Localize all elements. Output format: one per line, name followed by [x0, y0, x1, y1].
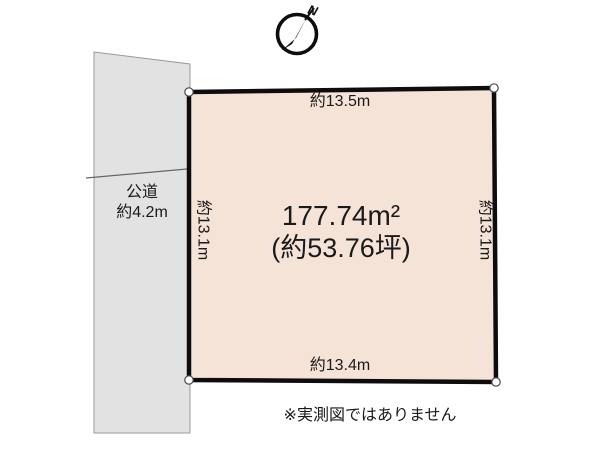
plot-left-length-label: 約13.1m [193, 200, 212, 260]
corner-dot-top-left [185, 88, 193, 96]
plot-area-tsubo: (約53.76坪) [271, 232, 411, 265]
plot-area-m2: 177.74m² [271, 199, 411, 232]
compass-icon: N [278, 2, 321, 54]
road-area [94, 52, 190, 433]
compass-needle [281, 17, 307, 51]
compass-circle [278, 15, 317, 54]
corner-dot-bottom-right [492, 378, 500, 386]
corner-dot-top-right [490, 84, 498, 92]
plot-bottom-length-label: 約13.4m [310, 356, 370, 375]
road-label-width: 約4.2m [116, 203, 168, 223]
plot-area-label: 177.74m² (約53.76坪) [271, 199, 411, 265]
plot-top-length-label: 約13.5m [310, 92, 370, 111]
road-label-type: 公道 [116, 183, 168, 203]
land-plot-diagram: N 約13.5m 約13.4m 約13.1m 約13.1m 177.74m² (… [0, 0, 600, 450]
plot-right-length-label: 約13.1m [475, 200, 494, 260]
compass-north-label: N [306, 2, 320, 19]
corner-dot-bottom-left [185, 376, 193, 384]
road-label: 公道 約4.2m [116, 183, 168, 223]
disclaimer-note: ※実測図ではありません [284, 406, 457, 425]
